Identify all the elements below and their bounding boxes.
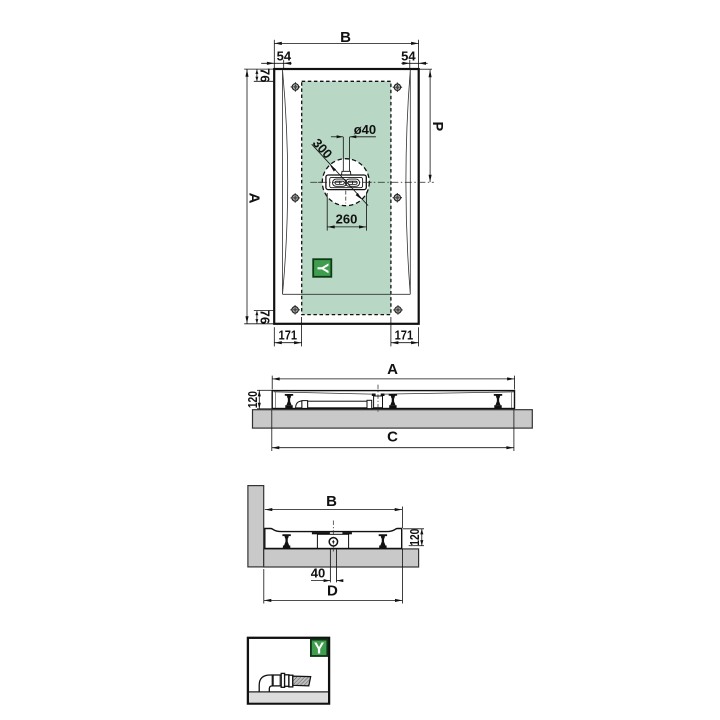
svg-text:120: 120 <box>245 391 260 408</box>
svg-text:A: A <box>387 361 398 378</box>
svg-text:260: 260 <box>336 211 358 226</box>
svg-text:Y: Y <box>314 641 325 658</box>
svg-text:D: D <box>327 582 338 599</box>
svg-text:120: 120 <box>407 529 422 546</box>
svg-text:54: 54 <box>401 48 416 63</box>
svg-text:B: B <box>326 493 337 510</box>
svg-text:76: 76 <box>257 68 272 82</box>
svg-text:A: A <box>246 193 263 204</box>
svg-text:P: P <box>429 121 445 131</box>
svg-text:171: 171 <box>279 328 298 343</box>
svg-text:B: B <box>340 29 351 46</box>
svg-text:40: 40 <box>311 566 325 581</box>
svg-text:54: 54 <box>277 48 292 63</box>
svg-text:C: C <box>387 428 398 445</box>
svg-text:ø40: ø40 <box>354 122 376 137</box>
svg-text:171: 171 <box>395 328 414 343</box>
svg-text:76: 76 <box>257 310 272 324</box>
svg-text:Y: Y <box>313 263 330 274</box>
